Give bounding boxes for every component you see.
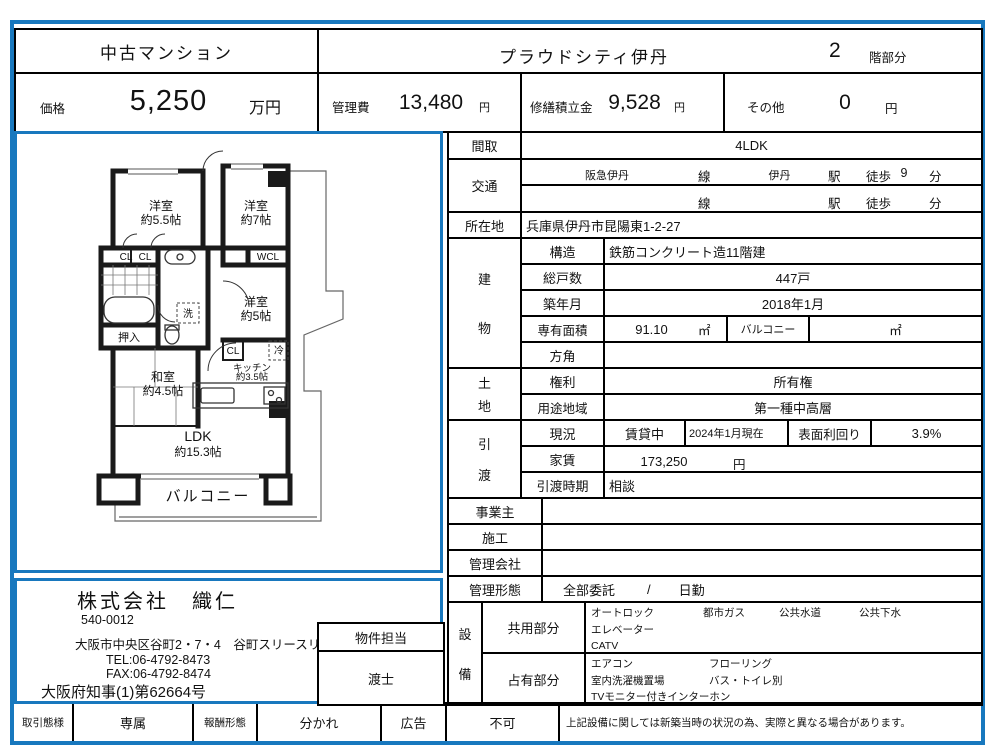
staff-label: 物件担当 [355, 628, 407, 647]
balcony-label-cell: バルコニー [726, 315, 810, 343]
genkyo-asof: 2024年1月現在 [689, 425, 764, 441]
kotsu-line2-cell: 線 駅 徒歩 分 [520, 184, 983, 213]
yoto-value: 第一種中高層 [754, 398, 832, 417]
room-label: LDK [184, 428, 212, 444]
price-value: 5,250 [101, 85, 236, 118]
kanri-keitai-label: 管理形態 [469, 580, 521, 599]
menseki-unit: ㎡ [698, 320, 726, 339]
madori-label: 間取 [471, 136, 497, 155]
sokosu-value: 447戸 [776, 268, 811, 287]
kitchen-sink [201, 388, 234, 403]
kotsu-label-cell: 交通 [447, 158, 522, 213]
property-type: 中古マンション [100, 39, 233, 64]
closet-label: CL [139, 252, 152, 263]
company-license: 大阪府知事(1)第62664号 [41, 681, 206, 702]
kokoku-label: 広告 [400, 713, 426, 732]
shuzen-cell: 修繕積立金 9,528 円 [520, 72, 725, 133]
sokosu-label-cell: 総戸数 [520, 263, 605, 291]
price-cell: 価格 5,250 万円 [14, 72, 319, 133]
hikiwatashi-label-cell: 引 渡 [447, 419, 522, 499]
sonota-value: 0 [830, 91, 860, 115]
kanrihi-value: 13,480 [387, 91, 475, 115]
toilet [165, 326, 179, 344]
chiku-label: 築年月 [543, 294, 582, 313]
hikiwatashi-label-1: 引 [478, 434, 491, 453]
tatemono-label-2: 物 [478, 318, 491, 337]
seko-label-cell: 施工 [447, 523, 543, 551]
property-name-cell: プラウドシティ伊丹 2 階部分 [317, 28, 983, 74]
kyoyo-item: オートロック [591, 605, 703, 622]
bathtub [104, 297, 154, 323]
hikiwatashi-label-2: 渡 [478, 465, 491, 484]
hoshu-label-cell: 報酬形態 [192, 704, 258, 741]
hogaku-value-cell [603, 341, 983, 369]
menseki-value: 91.10 [605, 322, 698, 337]
room-label: 洋室 [244, 294, 268, 309]
tochi-label-1: 土 [478, 373, 491, 392]
rimawari-label-cell: 表面利回り [787, 419, 872, 447]
jiki-label-cell: 引渡時期 [520, 471, 605, 499]
kozo-value: 鉄筋コンクリート造11階建 [609, 242, 766, 261]
hoshu-value: 分かれ [299, 713, 338, 732]
senyu-items-cell: エアコンフローリング 室内洗濯機置場バス・トイレ別 TVモニター付きインターホン [584, 652, 983, 706]
kyoyo-item: 都市ガス [703, 605, 779, 622]
kokoku-value: 不可 [489, 713, 515, 732]
washbasin [165, 250, 195, 264]
floorplan-box: 洋室 約5.5帖 洋室 約7帖 洋室 約5帖 和室 約4.5帖 LDK 約15.… [14, 131, 443, 573]
kanrihi-label: 管理費 [332, 97, 370, 116]
genkyo-label: 現況 [549, 424, 575, 443]
torihiki-label: 取引態様 [22, 715, 64, 730]
price-unit: 万円 [249, 94, 281, 118]
jiki-value: 相談 [609, 476, 635, 495]
senyu-item: バス・トイレ別 [709, 675, 783, 687]
chiku-label-cell: 築年月 [520, 289, 605, 317]
walk-minutes: 9 [893, 166, 915, 180]
shuzen-value: 9,528 [597, 91, 672, 115]
balcony-label: バルコニー [741, 321, 796, 337]
setsubi-label-2: 備 [458, 664, 471, 683]
hoshu-value-cell: 分かれ [256, 704, 382, 741]
seko-value-cell [541, 523, 983, 551]
rail-name: 阪急伊丹 [552, 167, 662, 183]
room-label: 和室 [151, 369, 175, 384]
company-tel: TEL:06-4792-8473 [106, 653, 210, 667]
torihiki-value-cell: 専属 [72, 704, 194, 741]
sen-label: 線 [698, 193, 711, 212]
entrance-door-arc [203, 151, 223, 171]
yachin-value: 173,250 [619, 454, 709, 469]
kotsu-line1-cell: 阪急伊丹 線 伊丹 駅 徒歩 9 分 [520, 158, 983, 186]
rimawari-label: 表面利回り [798, 424, 861, 443]
senyu-row-2: 室内洗濯機置場バス・トイレ別 [591, 673, 979, 690]
madori-value: 4LDK [735, 138, 768, 153]
hoshu-label: 報酬形態 [204, 715, 246, 730]
pillar-right [266, 476, 290, 503]
kyoyo-item: 公共水道 [779, 605, 859, 622]
station-name: 伊丹 [737, 167, 822, 183]
seko-label: 施工 [482, 528, 508, 547]
balcony-value-cell: ㎡ [808, 315, 983, 343]
senyu-item: エアコン [591, 656, 709, 673]
kyoyo-row-1: オートロック都市ガス公共水道公共下水 [591, 605, 979, 622]
madori-label-cell: 間取 [447, 131, 522, 160]
sonota-label: その他 [747, 97, 785, 116]
menseki-value-cell: 91.10 ㎡ [603, 315, 728, 343]
kenri-value-cell: 所有権 [603, 367, 983, 395]
chiku-value-cell: 2018年1月 [603, 289, 983, 317]
closet-label: CL [120, 252, 133, 263]
kyoyo-label-cell: 共用部分 [481, 601, 586, 654]
balcony-unit: ㎡ [889, 320, 902, 339]
room-label: 約5帖 [241, 308, 272, 323]
senyu-item: フローリング [709, 658, 772, 670]
kyoyo-label: 共用部分 [507, 618, 559, 637]
room-label: 約7帖 [241, 212, 272, 227]
flyer-page: 中古マンション プラウドシティ伊丹 2 階部分 価格 5,250 万円 管理費 … [0, 0, 995, 754]
shozaichi-value: 兵庫県伊丹市昆陽東1-2-27 [526, 216, 681, 235]
madori-value-cell: 4LDK [520, 131, 983, 160]
menseki-label: 専有面積 [537, 320, 587, 339]
floor-number: 2 [829, 39, 841, 63]
floorplan-drawing: 洋室 約5.5帖 洋室 約7帖 洋室 約5帖 和室 約4.5帖 LDK 約15.… [73, 143, 423, 543]
tatemono-label-1: 建 [478, 269, 491, 288]
kyoyo-row-2: エレベーター [591, 622, 979, 639]
property-name: プラウドシティ伊丹 [469, 43, 699, 68]
setsubi-note-cell: 上記設備に関しては新築当時の状況の為、実際と異なる場合があります。 [558, 702, 981, 741]
refrigerator-label: 冷 [274, 344, 284, 357]
yoto-label-cell: 用途地域 [520, 393, 605, 421]
senyu-label-cell: 占有部分 [481, 652, 586, 706]
fun-label: 分 [929, 193, 942, 212]
kyoyo-items-cell: オートロック都市ガス公共水道公共下水 エレベーター CATV [584, 601, 983, 654]
sonota-cell: その他 0 円 [723, 72, 983, 133]
jigyonushi-value-cell [541, 497, 983, 525]
price-label: 価格 [40, 98, 65, 117]
company-fax: FAX:06-4792-8474 [106, 667, 211, 681]
torihiki-value: 専属 [120, 713, 146, 732]
staff-name-cell: 渡士 [317, 650, 445, 706]
balcony-label: バルコニー [166, 488, 251, 505]
kokoku-value-cell: 不可 [445, 702, 560, 741]
kozo-value-cell: 鉄筋コンクリート造11階建 [603, 237, 983, 265]
shuzen-label: 修繕積立金 [530, 97, 593, 116]
kanri-keitai-value-1: 全部委託 [563, 580, 615, 599]
room-label: 約5.5帖 [141, 212, 182, 227]
chiku-value: 2018年1月 [762, 294, 824, 313]
company-name: 株式会社 織仁 [77, 585, 238, 614]
kotsu-label: 交通 [471, 176, 497, 195]
toho-label: 徒歩 [866, 193, 891, 212]
staff-name: 渡士 [368, 669, 394, 688]
yachin-label-cell: 家賃 [520, 445, 605, 473]
setsubi-label-cell: 設 備 [447, 601, 483, 706]
genkyo-value-cell: 賃貸中 [603, 419, 686, 447]
kanri-keitai-label-cell: 管理形態 [447, 575, 543, 603]
hogaku-label-cell: 方角 [520, 341, 605, 369]
kitchen-label: 約3.5帖 [236, 371, 269, 383]
genkyo-asof-cell: 2024年1月現在 [684, 419, 789, 447]
kokoku-label-cell: 広告 [380, 704, 447, 741]
shozaichi-label: 所在地 [465, 216, 504, 235]
shuzen-yen: 円 [674, 99, 685, 115]
kozo-label-cell: 構造 [520, 237, 605, 265]
genkyo-value: 賃貸中 [625, 424, 664, 443]
laundry-label: 洗 [183, 308, 193, 320]
oshiire-label: 押入 [118, 330, 140, 344]
room-label: 約15.3帖 [174, 444, 221, 459]
kanri-kaisha-value-cell [541, 549, 983, 577]
setsubi-note: 上記設備に関しては新築当時の状況の為、実際と異なる場合があります。 [566, 715, 911, 730]
jigyonushi-label-cell: 事業主 [447, 497, 543, 525]
rimawari-value: 3.9% [912, 426, 942, 441]
menseki-label-cell: 専有面積 [520, 315, 605, 343]
company-postal: 540-0012 [81, 613, 134, 627]
sonota-yen: 円 [885, 98, 898, 117]
pillar-left [99, 476, 138, 503]
setsubi-label-1: 設 [458, 624, 471, 643]
torihiki-label-cell: 取引態様 [14, 704, 74, 741]
rimawari-value-cell: 3.9% [870, 419, 983, 447]
senyu-item: 室内洗濯機置場 [591, 673, 709, 690]
kenri-value: 所有権 [773, 372, 812, 391]
kenri-label: 権利 [549, 372, 575, 391]
tochi-label-2: 地 [478, 396, 491, 415]
eki-label: 駅 [828, 166, 841, 185]
yoto-value-cell: 第一種中高層 [603, 393, 983, 421]
jigyonushi-label: 事業主 [475, 502, 514, 521]
sokosu-label: 総戸数 [543, 268, 582, 287]
property-type-cell: 中古マンション [14, 28, 319, 74]
kanri-kaisha-label: 管理会社 [469, 554, 521, 573]
senyu-label: 占有部分 [507, 670, 559, 689]
jiki-label: 引渡時期 [536, 476, 588, 495]
sen-label: 線 [698, 166, 711, 185]
kanrihi-cell: 管理費 13,480 円 [317, 72, 522, 133]
staff-label-cell: 物件担当 [317, 622, 445, 652]
tatemono-label-cell: 建 物 [447, 237, 522, 369]
yachin-label: 家賃 [549, 450, 575, 469]
kanri-keitai-slash: / [647, 582, 651, 597]
kanri-keitai-value-2: 日勤 [679, 580, 705, 599]
shozaichi-label-cell: 所在地 [447, 211, 522, 239]
kenri-label-cell: 権利 [520, 367, 605, 395]
sokosu-value-cell: 447戸 [603, 263, 983, 291]
room-label: 約4.5帖 [143, 383, 184, 398]
room-label: 洋室 [244, 198, 268, 213]
kanrihi-yen: 円 [479, 99, 490, 115]
hogaku-label: 方角 [549, 346, 575, 365]
yoto-label: 用途地域 [537, 398, 587, 417]
kanri-keitai-value-cell: 全部委託 / 日勤 [541, 575, 983, 603]
toho-label: 徒歩 [866, 166, 891, 185]
eki-label: 駅 [828, 193, 841, 212]
room-label: 洋室 [149, 198, 173, 213]
kozo-label: 構造 [549, 242, 575, 261]
senyu-row-1: エアコンフローリング [591, 656, 979, 673]
wcl-label: WCL [257, 252, 280, 263]
tochi-label-cell: 土 地 [447, 367, 522, 421]
fun-label: 分 [929, 166, 942, 185]
floor-suffix: 階部分 [869, 47, 907, 66]
jiki-value-cell: 相談 [603, 471, 983, 499]
kyoyo-item: 公共下水 [859, 607, 901, 619]
genkyo-label-cell: 現況 [520, 419, 605, 447]
kanri-kaisha-label-cell: 管理会社 [447, 549, 543, 577]
yachin-value-cell: 173,250 円 [603, 445, 983, 473]
shozaichi-value-cell: 兵庫県伊丹市昆陽東1-2-27 [520, 211, 983, 239]
closet-label: CL [227, 346, 240, 357]
